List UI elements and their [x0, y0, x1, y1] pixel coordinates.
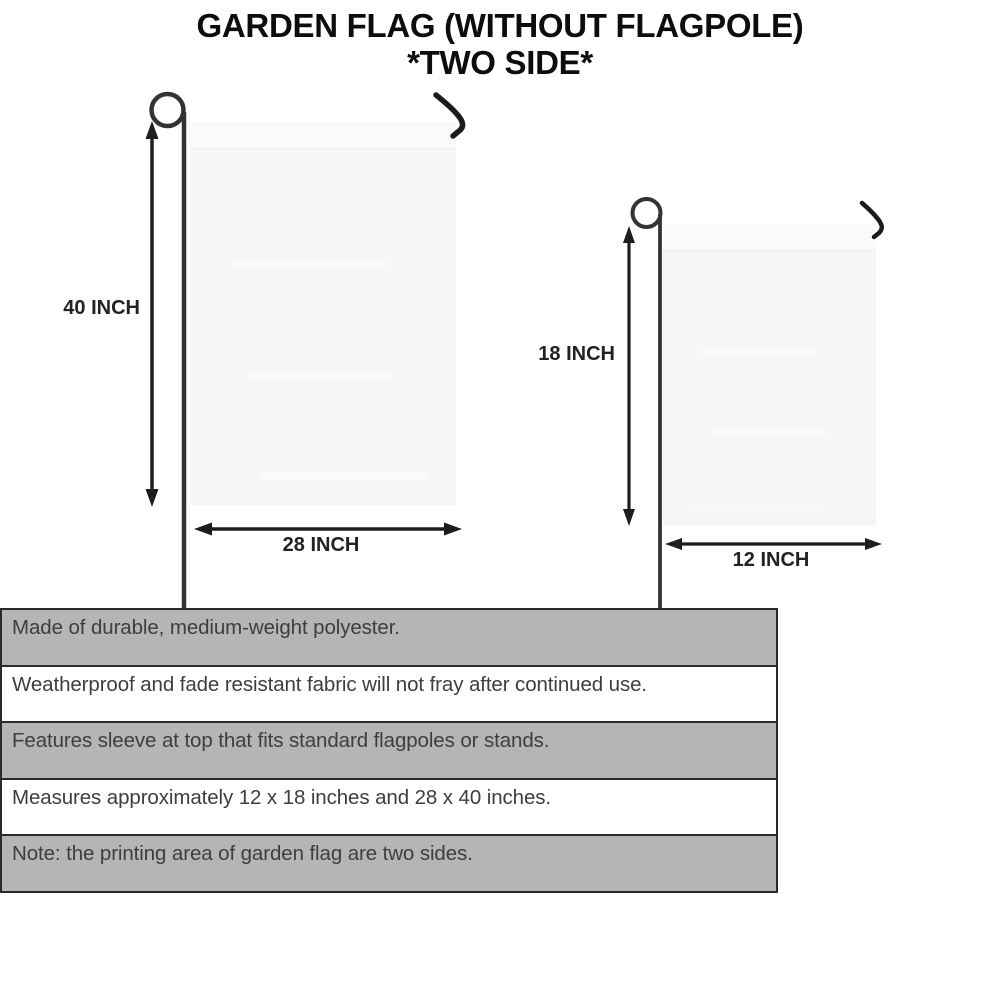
fabric-wrinkle — [230, 262, 390, 269]
feature-table: Made of durable, medium-weight polyester… — [0, 608, 778, 893]
small-flag-sleeve — [663, 224, 876, 251]
feature-row: Weatherproof and fade resistant fabric w… — [2, 665, 776, 722]
page-title: GARDEN FLAG (WITHOUT FLAGPOLE) *TWO SIDE… — [0, 7, 1000, 81]
small-height-arrow — [623, 226, 635, 526]
large-flag-sleeve — [190, 122, 456, 149]
feature-text: Features sleeve at top that fits standar… — [12, 729, 549, 752]
fabric-wrinkle — [698, 349, 818, 355]
feature-row: Features sleeve at top that fits standar… — [2, 721, 776, 778]
fabric-wrinkle — [245, 372, 395, 380]
large-pole-loop-icon — [152, 94, 184, 126]
fabric-wrinkle — [713, 429, 828, 436]
fabric-wrinkle — [260, 472, 430, 479]
small-flag-canvas — [663, 224, 876, 526]
feature-text: Made of durable, medium-weight polyester… — [12, 616, 400, 639]
large-height-arrow — [146, 121, 159, 507]
feature-text: Weatherproof and fade resistant fabric w… — [12, 673, 647, 696]
feature-text: Note: the printing area of garden flag a… — [12, 842, 473, 865]
feature-row: Measures approximately 12 x 18 inches an… — [2, 778, 776, 835]
title-line-2: *TWO SIDE* — [0, 44, 1000, 81]
large-height-label: 40 INCH — [22, 297, 140, 320]
small-height-label: 18 INCH — [497, 343, 615, 366]
large-flag-canvas — [190, 122, 456, 505]
small-width-label: 12 INCH — [671, 549, 871, 572]
large-width-label: 28 INCH — [221, 534, 421, 557]
garden-flag-infographic: GARDEN FLAG (WITHOUT FLAGPOLE) *TWO SIDE… — [0, 0, 1000, 1000]
small-pole-loop-icon — [633, 199, 661, 227]
title-line-1: GARDEN FLAG (WITHOUT FLAGPOLE) — [0, 7, 1000, 44]
fabric-wrinkle — [693, 504, 823, 510]
feature-text: Measures approximately 12 x 18 inches an… — [12, 786, 551, 809]
feature-row: Note: the printing area of garden flag a… — [2, 834, 776, 891]
feature-row: Made of durable, medium-weight polyester… — [2, 610, 776, 665]
